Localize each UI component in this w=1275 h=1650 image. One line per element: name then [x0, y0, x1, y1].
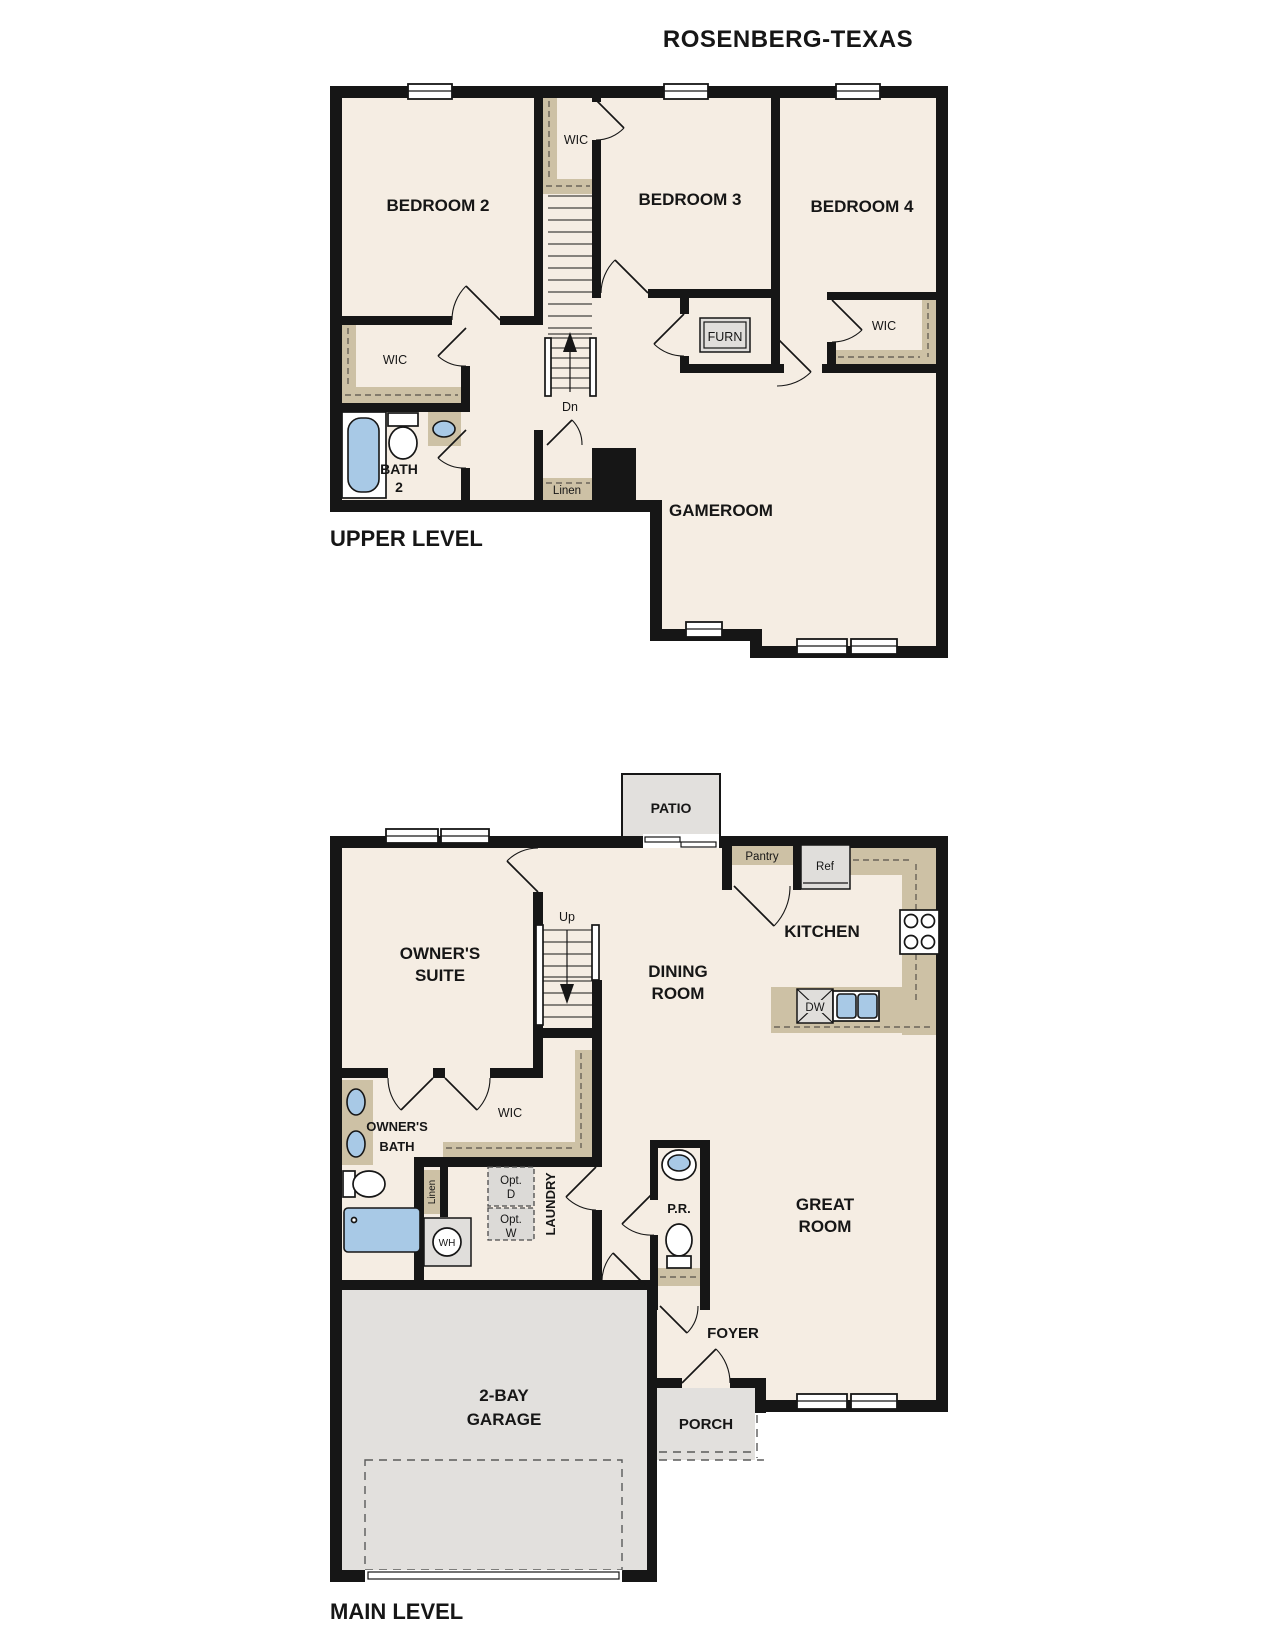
- sink: [433, 421, 455, 437]
- toilet-bowl: [666, 1224, 692, 1256]
- great-room-label-line2: ROOM: [799, 1217, 852, 1236]
- foyer-label: FOYER: [707, 1325, 759, 1342]
- opt-washer-label-line1: Opt.: [500, 1214, 522, 1226]
- pantry-label: Pantry: [745, 851, 778, 863]
- bedroom4-wic-label: WIC: [872, 319, 896, 333]
- owners-bath-label-line2: BATH: [379, 1139, 414, 1154]
- upper-linen-label: Linen: [553, 485, 581, 497]
- bath2-label-line2: 2: [395, 479, 403, 495]
- dw-label: DW: [805, 1002, 824, 1014]
- bedroom3-wic-label: WIC: [564, 133, 588, 147]
- bathtub: [348, 418, 379, 492]
- stairs-up-label: Up: [559, 910, 575, 924]
- bedroom2-label: BEDROOM 2: [387, 196, 490, 215]
- owners-suite-label-line1: OWNER'S: [400, 944, 481, 963]
- main-floor: [342, 848, 936, 1280]
- kitchen-label: KITCHEN: [784, 922, 860, 941]
- main-wic-label: WIC: [498, 1106, 522, 1120]
- stairs-dn-label: Dn: [562, 400, 578, 414]
- toilet-bowl: [353, 1171, 385, 1197]
- bedroom4-label: BEDROOM 4: [811, 197, 915, 216]
- gameroom-label: GAMEROOM: [669, 501, 773, 520]
- vanity-sink: [347, 1089, 365, 1115]
- kitchen-sink-basin: [858, 994, 877, 1018]
- main-level-label: MAIN LEVEL: [330, 1599, 463, 1624]
- toilet-tank: [388, 413, 418, 426]
- great-room-label-line1: GREAT: [796, 1195, 855, 1214]
- dining-room-label-line2: ROOM: [652, 984, 705, 1003]
- main-floor-lower: [657, 1280, 936, 1400]
- garage-label-line1: 2-BAY: [479, 1386, 529, 1405]
- garage-floor: [342, 1290, 647, 1570]
- wh-label: WH: [439, 1238, 456, 1249]
- owners-tub: [344, 1208, 420, 1252]
- toilet-bowl: [389, 427, 417, 459]
- opt-dryer-label-line2: D: [507, 1189, 515, 1201]
- pr-label: P.R.: [667, 1201, 691, 1216]
- plan-title: ROSENBERG-TEXAS: [663, 26, 913, 53]
- stair-rail: [545, 338, 551, 396]
- owners-suite-label-line2: SUITE: [415, 966, 465, 985]
- upper-level-label: UPPER LEVEL: [330, 526, 483, 551]
- bedroom2-wic-label: WIC: [383, 353, 407, 367]
- upper-level-plan: BEDROOM 2 BEDROOM 3 BEDROOM 4 GAMEROOM W…: [330, 84, 948, 658]
- patio: PATIO: [622, 774, 720, 842]
- main-level-plan: PATIO: [330, 774, 948, 1624]
- stair-rail: [592, 925, 599, 980]
- furn-label: FURN: [708, 330, 743, 344]
- opt-dryer-label-line1: Opt.: [500, 1175, 522, 1187]
- floorplan-page: ROSENBERG-TEXAS: [0, 0, 1275, 1650]
- laundry-label: LAUNDRY: [543, 1172, 558, 1235]
- bedroom3-label: BEDROOM 3: [639, 190, 742, 209]
- dining-room-label-line1: DINING: [648, 962, 708, 981]
- kitchen-sink-basin: [837, 994, 856, 1018]
- vanity-sink: [347, 1131, 365, 1157]
- stair-rail: [590, 338, 596, 396]
- toilet-tank: [667, 1256, 691, 1268]
- main-linen-label: Linen: [427, 1180, 438, 1204]
- floorplan-drawing: ROSENBERG-TEXAS: [0, 0, 1275, 1650]
- owners-bath-label-line1: OWNER'S: [366, 1119, 428, 1134]
- porch-label: PORCH: [679, 1416, 733, 1433]
- patio-label: PATIO: [651, 800, 692, 816]
- ref-label: Ref: [816, 861, 835, 873]
- opt-washer-label-line2: W: [506, 1228, 517, 1240]
- bath2-label-line1: BATH: [380, 461, 418, 477]
- garage-label-line2: GARAGE: [467, 1410, 542, 1429]
- stair-rail: [536, 925, 543, 1025]
- pedestal-sink-basin: [668, 1155, 690, 1171]
